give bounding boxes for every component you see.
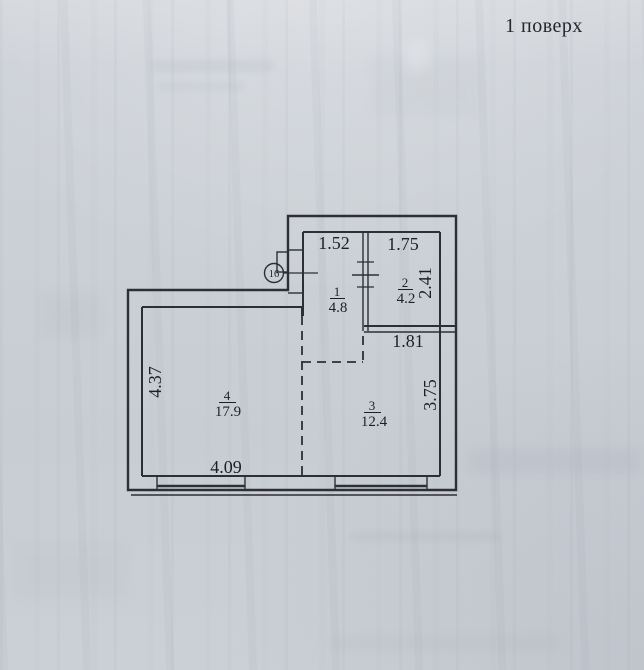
dimension-labels: 1.52 1.75 2.41 1.81 3.75 4.37 4.09 [145,233,440,477]
dim-bath-right: 2.41 [415,267,435,299]
room-4-number: 4 [224,388,231,403]
apartment-marker-label: 16 [269,269,280,280]
dim-room4-bottom: 4.09 [210,457,242,477]
dashed-partition [302,316,363,476]
walls [128,216,457,495]
dim-below-bath: 1.81 [392,331,424,351]
dim-hall-top: 1.52 [318,233,350,253]
scanned-floor-plan-photo: 1 поверх [0,0,644,670]
floor-plan-drawing: 16 1.52 1.75 2.41 1.81 3.75 4.37 4.09 1 … [0,0,644,670]
room-1-label: 1 4.8 [329,284,348,316]
room-2-label: 2 4.2 [397,275,416,307]
dim-room3-right: 3.75 [420,379,440,411]
windows [157,476,427,490]
room-3-area: 12.4 [361,414,388,430]
room-labels: 1 4.8 2 4.2 3 12.4 4 17.9 [215,275,416,430]
dim-room4-left: 4.37 [145,366,165,398]
room-2-number: 2 [402,275,409,290]
room-3-label: 3 12.4 [361,398,388,430]
outer-wall [128,216,456,490]
dim-bath-top: 1.75 [387,234,419,254]
room-1-number: 1 [334,284,341,299]
room-3-number: 3 [369,398,376,413]
room-1-area: 4.8 [329,300,348,316]
room-4-area: 17.9 [215,404,241,420]
room-4-label: 4 17.9 [215,388,241,420]
room-2-area: 4.2 [397,291,416,307]
